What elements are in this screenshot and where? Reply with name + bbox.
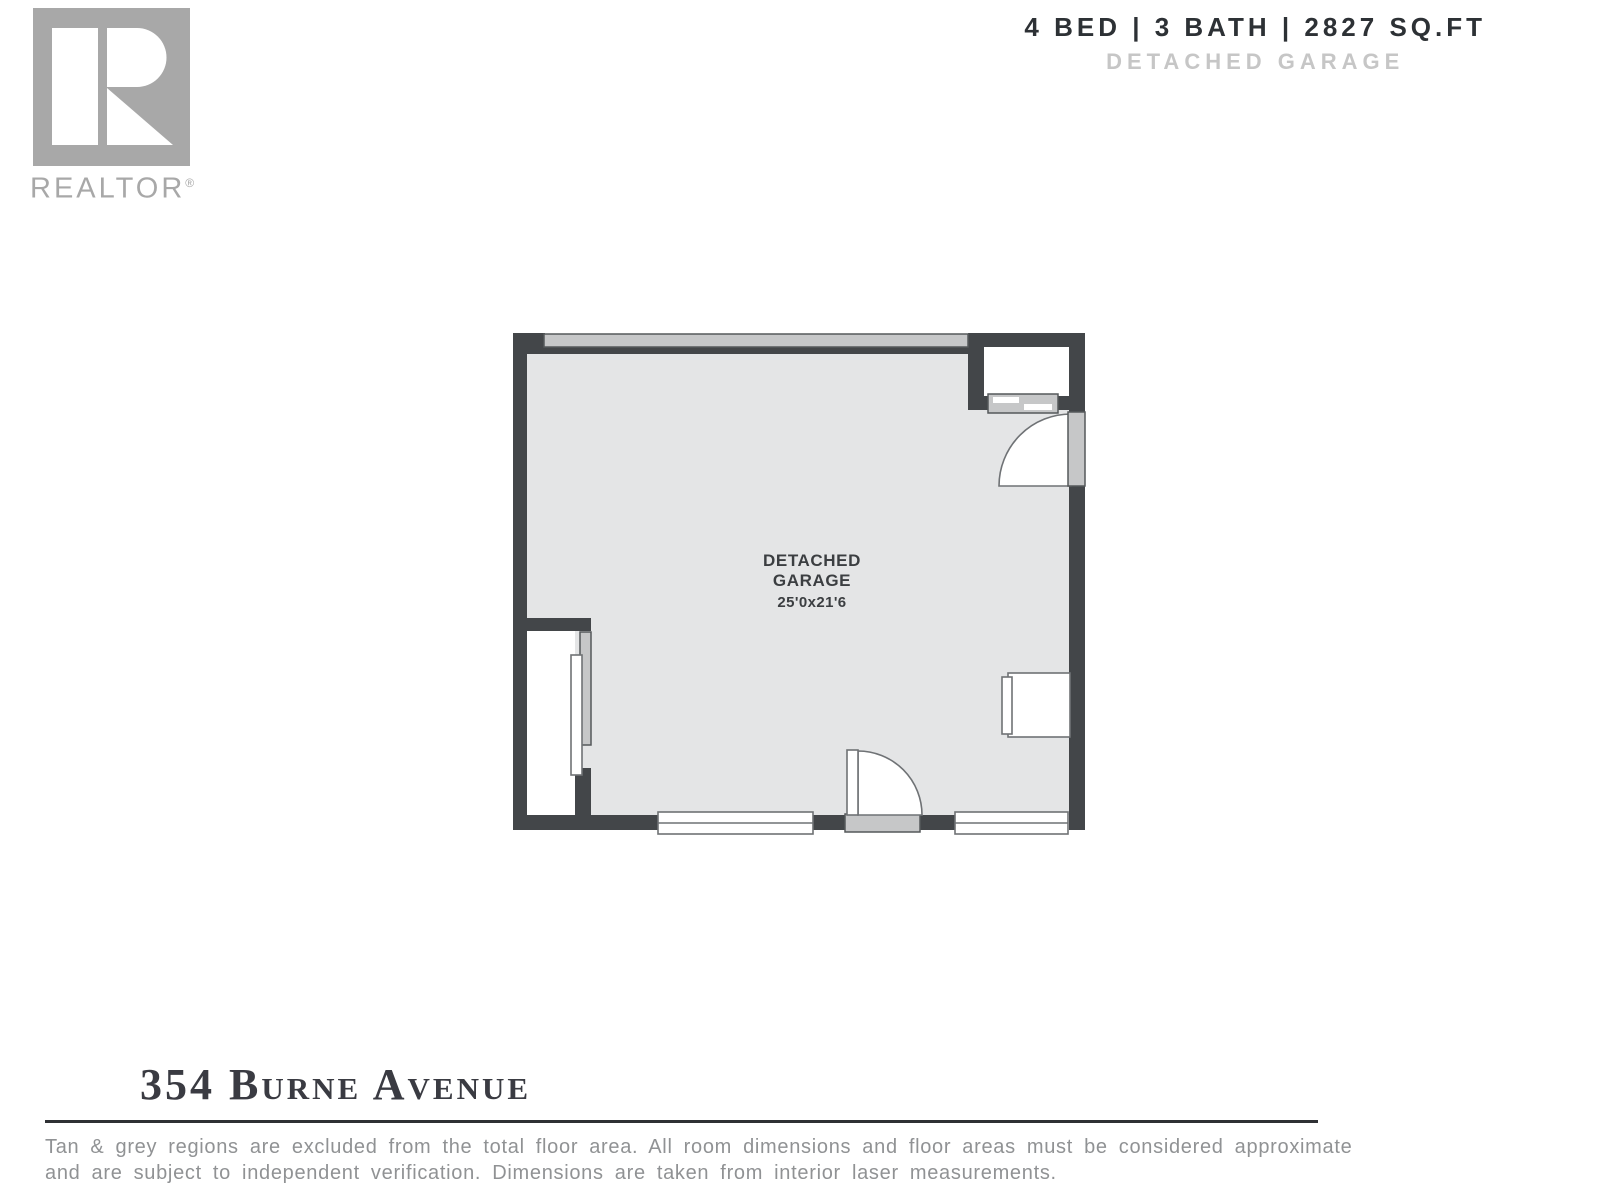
workbench [1008,673,1070,737]
room-label: DETACHED GARAGE 25'0x21'6 [763,551,861,611]
room-name-line1: DETACHED [763,551,861,571]
door-leaf-bottom [847,750,858,815]
wall-left [513,333,527,830]
garage-door [544,334,968,347]
workbench-panel [1002,677,1012,734]
disclaimer: Tan & grey regions are excluded from the… [45,1134,1425,1186]
wall-right-lower [1069,486,1085,830]
wall-bottom-mid-b [920,815,955,830]
wall-bottom-mid-a [813,815,845,830]
shelf-stripe-1 [993,397,1019,403]
door-leaf-right [1068,412,1085,486]
door-threshold-bottom [845,814,920,832]
room-dimensions: 25'0x21'6 [763,594,861,611]
wall-partition-lower [575,768,591,830]
alcove-interior [527,631,575,815]
niche-interior [984,347,1070,396]
property-address: 354 Burne Avenue [140,1063,531,1107]
shelf [988,394,1058,413]
room-name-line2: GARAGE [763,571,861,591]
floor-plan-sheet: { "logo": { "letter": "R", "brand": "REA… [0,0,1600,1200]
disclaimer-line1: Tan & grey regions are excluded from the… [45,1134,1425,1160]
sliding-panel-white [571,655,582,775]
footer-divider [45,1120,1318,1123]
disclaimer-line2: and are subject to independent verificat… [45,1160,1425,1186]
wall-top-right [968,333,1085,347]
wall-interior-stub [527,618,591,631]
shelf-stripe-2 [1024,404,1052,410]
